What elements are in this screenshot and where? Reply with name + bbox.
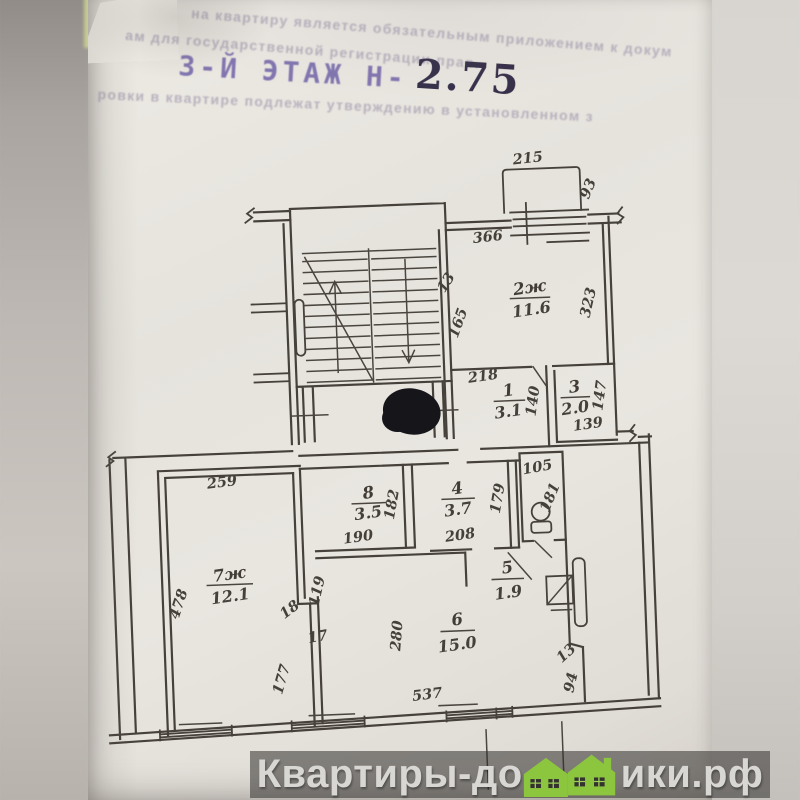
- ink-blot: [378, 382, 446, 442]
- dim-280: 280: [387, 620, 407, 653]
- room-2-area: 11.6: [511, 297, 552, 321]
- dim-182: 182: [381, 488, 403, 521]
- dim-140: 140: [523, 385, 544, 417]
- dim-190: 190: [342, 527, 374, 548]
- house-right: [568, 754, 615, 795]
- room-6-area: 15.0: [437, 632, 478, 656]
- dim-215: 215: [511, 148, 544, 168]
- dim-13a: 13: [434, 269, 459, 295]
- dimension-labels: 215 93 366 13 165 323 218 140 147 139 25…: [149, 146, 623, 714]
- balcony-and-top-wall: [444, 165, 625, 247]
- dim-94: 94: [560, 671, 581, 694]
- room-7-number: 7ж: [212, 562, 248, 586]
- dim-119: 119: [306, 574, 329, 607]
- blurred-photo-edge-right: [708, 0, 800, 800]
- document-page: на квартиру является обязательным прилож…: [88, 0, 712, 800]
- dim-147: 147: [589, 379, 610, 411]
- upper-room-walls: [446, 216, 652, 450]
- dim-139: 139: [572, 414, 604, 435]
- stair-window: [294, 300, 305, 356]
- room-8-area: 3.5: [353, 501, 383, 524]
- watermark-text-left: Квартиры-до: [257, 752, 523, 797]
- dim-323: 323: [577, 286, 600, 319]
- room-7-area: 12.1: [210, 584, 251, 608]
- dim-218: 218: [466, 366, 499, 387]
- dim-208: 208: [443, 525, 476, 546]
- houses-icon: [519, 748, 625, 800]
- dim-179: 179: [487, 482, 509, 515]
- dim-17: 17: [306, 627, 329, 647]
- room-5-number: 5: [500, 557, 514, 577]
- dim-105: 105: [521, 456, 554, 478]
- staircase: [303, 246, 441, 384]
- photo-of-floorplan: на квартиру является обязательным прилож…: [0, 0, 800, 800]
- shaft-slot: [573, 558, 588, 626]
- room-4-number: 4: [450, 478, 464, 498]
- site-watermark: Квартиры-до ики.рф: [250, 751, 770, 798]
- dim-537: 537: [411, 684, 443, 705]
- room-3-number: 3: [567, 377, 581, 397]
- stair-down-arrow: [399, 259, 415, 362]
- room-5-area: 1.9: [493, 581, 523, 604]
- dim-181: 181: [536, 480, 563, 515]
- room-4-area: 3.7: [443, 498, 473, 521]
- room-8-number: 8: [360, 482, 376, 503]
- balcony-outline: [503, 167, 582, 213]
- dim-366: 366: [472, 227, 504, 247]
- dim-259: 259: [205, 472, 238, 493]
- blurred-photo-edge-left: [0, 0, 94, 800]
- room-2-number: 2ж: [511, 276, 548, 300]
- house-left: [524, 757, 568, 796]
- room-1-area: 3.1: [493, 400, 523, 423]
- watermark-text-right: ики.рф: [621, 752, 764, 797]
- room-1-number: 1: [501, 380, 515, 400]
- dim-177: 177: [269, 662, 294, 696]
- floorplan-drawing: 2ж 11.6 1 3.1 3 2.0 7ж 12.1 8 3.5 4: [88, 0, 712, 800]
- room-6-number: 6: [450, 609, 465, 630]
